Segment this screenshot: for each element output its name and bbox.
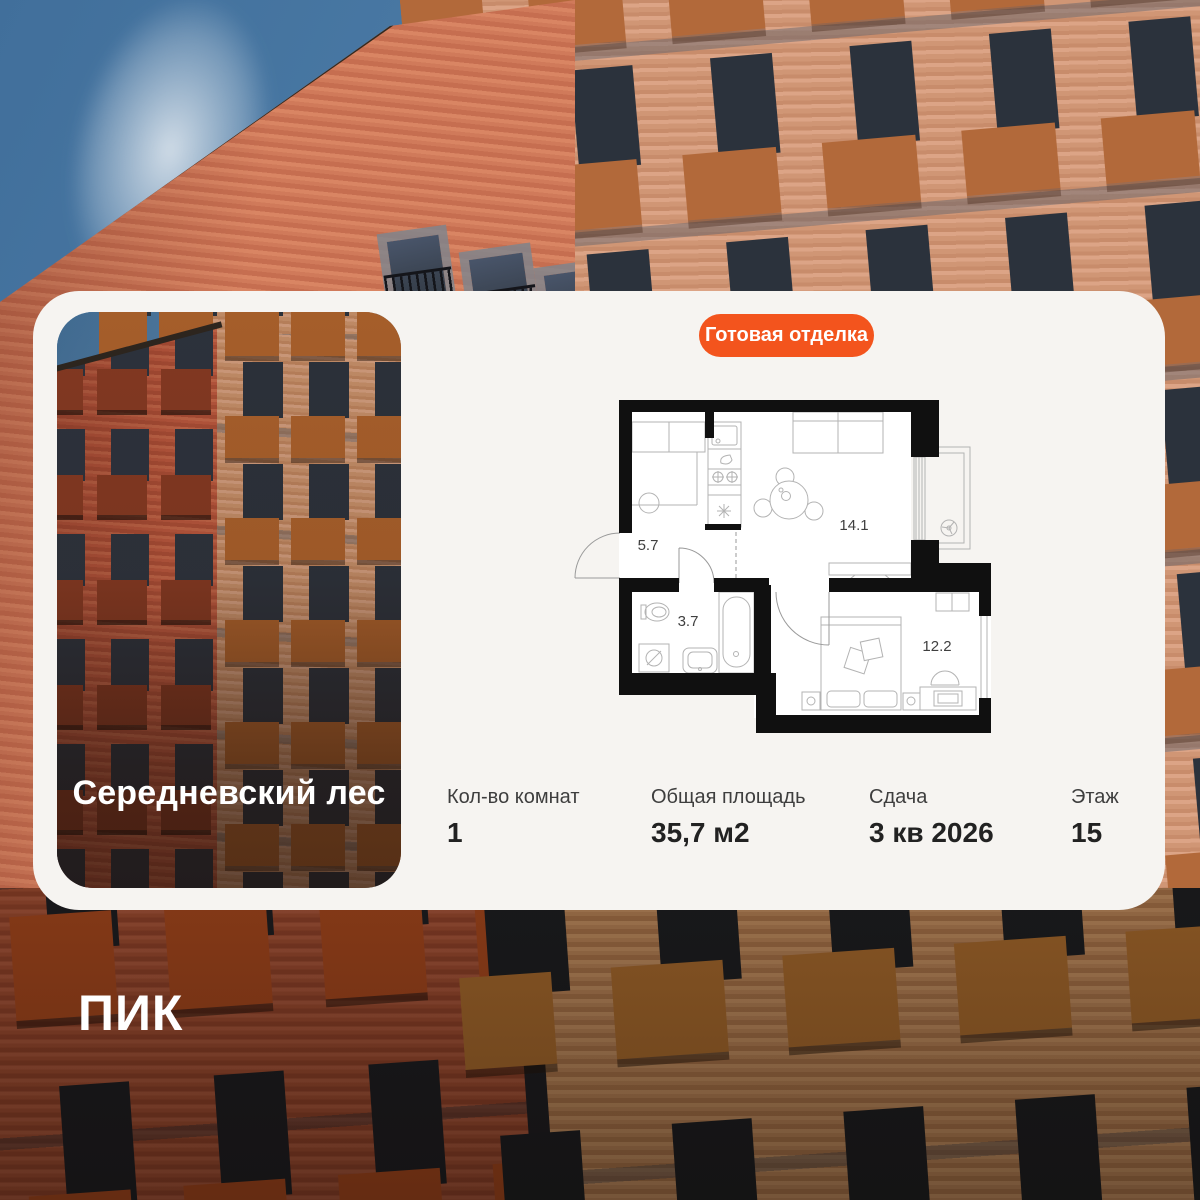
stat-value: 35,7 м2 xyxy=(651,817,806,849)
background-bottom-band xyxy=(0,888,1200,1200)
room-area-hallway: 5.7 xyxy=(638,537,659,554)
pik-logo: ПИК xyxy=(78,984,183,1042)
stat-label: Кол-во комнат xyxy=(447,785,579,809)
room-area-bedroom: 12.2 xyxy=(922,638,951,655)
room-area-kitchen-living: 14.1 xyxy=(839,517,868,534)
stat-floor: Этаж 15 xyxy=(1071,785,1119,849)
stat-rooms: Кол-во комнат 1 xyxy=(447,785,579,849)
stat-value: 3 кв 2026 xyxy=(869,817,994,849)
stat-label: Сдача xyxy=(869,785,994,809)
stat-value: 15 xyxy=(1071,817,1119,849)
stat-delivery: Сдача 3 кв 2026 xyxy=(869,785,994,849)
floor-plan: 5.7 14.1 3.7 12.2 xyxy=(571,393,991,733)
stat-total-area: Общая площадь 35,7 м2 xyxy=(651,785,806,849)
stat-label: Общая площадь xyxy=(651,785,806,809)
project-name: Середневский лес xyxy=(57,774,401,813)
finish-badge: Готовая отделка xyxy=(699,314,874,357)
listing-card: Середневский лес Готовая отделка xyxy=(33,291,1165,910)
project-photo: Середневский лес xyxy=(57,312,401,888)
stat-label: Этаж xyxy=(1071,785,1119,809)
promo-banner: Середневский лес Готовая отделка xyxy=(0,0,1200,1200)
room-area-bathroom: 3.7 xyxy=(678,613,699,630)
stat-value: 1 xyxy=(447,817,579,849)
shadow-overlay xyxy=(0,888,1200,1200)
